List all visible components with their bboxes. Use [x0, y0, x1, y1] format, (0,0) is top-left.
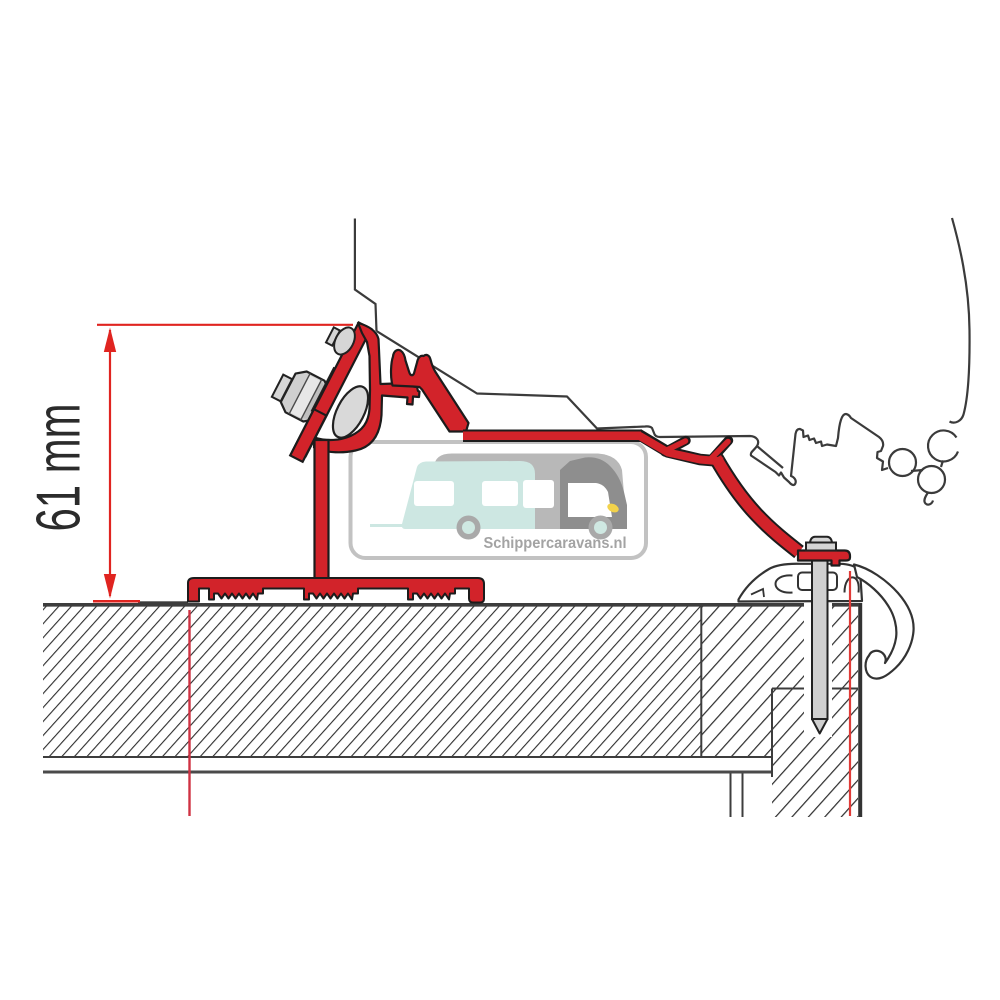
svg-text:Schippercaravans.nl: Schippercaravans.nl	[484, 535, 627, 552]
svg-text:61 mm: 61 mm	[25, 404, 94, 532]
